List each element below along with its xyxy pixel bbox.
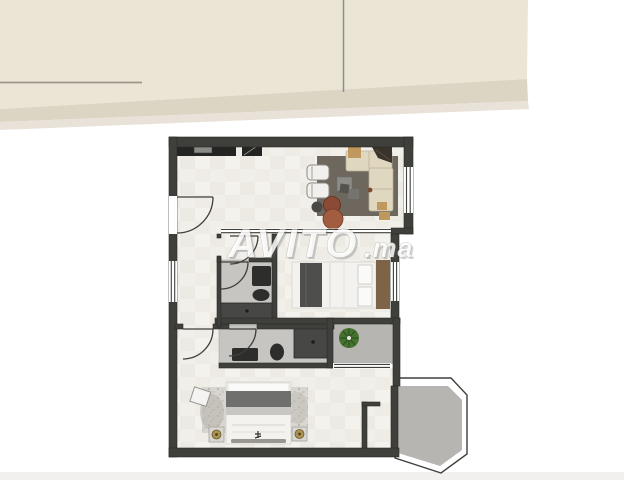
- sofa-accent-pillow: [368, 188, 373, 193]
- toilet-2: [270, 344, 284, 361]
- bed-pillows: [228, 383, 289, 392]
- wall-top: [169, 137, 413, 147]
- toilet-1: [253, 289, 270, 301]
- side-table: [348, 146, 361, 158]
- bed-fold: [226, 407, 291, 415]
- wall-bottom: [169, 448, 399, 457]
- nightstand-right: [292, 427, 307, 441]
- banner-backdrop: [0, 0, 529, 130]
- small-side-table: [312, 202, 323, 213]
- window-bedroom-right: [391, 262, 399, 301]
- closet-floor: [367, 406, 389, 448]
- nightstand-left: [209, 427, 224, 442]
- window-left: [169, 261, 177, 302]
- watermark-brand: AVITO: [227, 222, 359, 266]
- sink-1: [252, 266, 271, 286]
- floor-cushion-1: [377, 202, 387, 210]
- bed-blanket: [226, 391, 291, 407]
- bed-throw-blanket: [300, 263, 322, 307]
- pillow: [358, 287, 372, 306]
- real-estate-floorplan-photo: AVITO .ma AVITO .ma: [0, 0, 624, 480]
- floor-cushion-2: [379, 212, 390, 220]
- headboard: [376, 260, 390, 309]
- background-shadow-band: [0, 472, 624, 480]
- corridor-floor: [175, 230, 219, 330]
- plant-icon: [339, 328, 359, 348]
- bed-footboard: [231, 439, 286, 443]
- terrace-door: [333, 363, 391, 369]
- floorplan-canvas: AVITO .ma AVITO .ma: [0, 0, 624, 480]
- wall-closet: [362, 402, 367, 448]
- window-living-right: [404, 167, 413, 213]
- terrace-floor-lower: [398, 386, 462, 466]
- watermark-tld: .ma: [364, 233, 414, 263]
